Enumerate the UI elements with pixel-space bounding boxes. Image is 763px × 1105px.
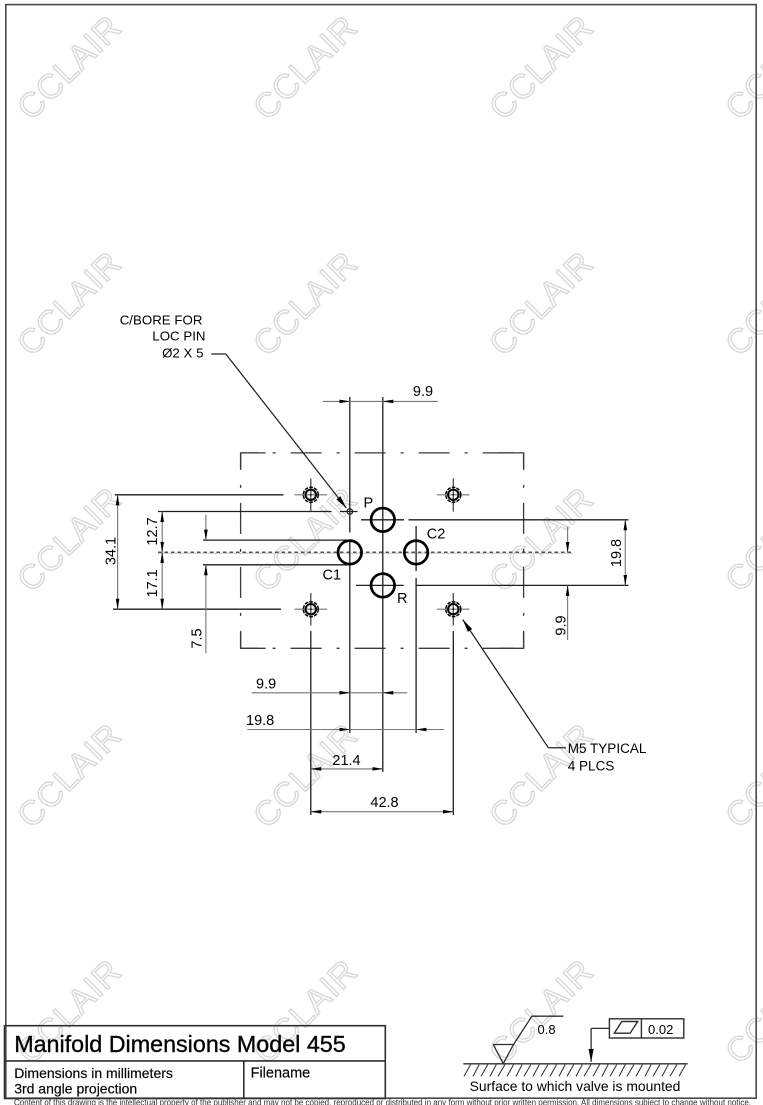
svg-text:19.8: 19.8 [246, 713, 274, 729]
svg-text:Ø2 X 5: Ø2 X 5 [162, 346, 203, 361]
svg-text:21.4: 21.4 [332, 753, 360, 769]
svg-text:CCLAIR: CCLAIR [10, 716, 129, 835]
svg-text:0.02: 0.02 [648, 1022, 673, 1037]
svg-text:17.1: 17.1 [145, 569, 161, 597]
svg-text:9.9: 9.9 [554, 615, 570, 635]
svg-text:CCLAIR: CCLAIR [246, 8, 365, 127]
svg-text:Dimensions in millimeters: Dimensions in millimeters [14, 1065, 173, 1081]
svg-text:C1: C1 [323, 568, 342, 584]
svg-text:3rd angle projection: 3rd angle projection [14, 1081, 137, 1097]
svg-text:C/BORE FOR: C/BORE FOR [120, 313, 203, 328]
svg-text:Manifold Dimensions Model 455: Manifold Dimensions Model 455 [14, 1031, 346, 1057]
svg-text:CCLAIR: CCLAIR [246, 716, 365, 835]
svg-text:19.8: 19.8 [609, 539, 625, 567]
svg-text:42.8: 42.8 [370, 795, 398, 811]
svg-text:Content of this drawing is the: Content of this drawing is the intellect… [14, 1098, 751, 1105]
svg-text:LOC PIN: LOC PIN [152, 329, 205, 344]
svg-text:4 PLCS: 4 PLCS [568, 759, 615, 774]
svg-text:M5 TYPICAL: M5 TYPICAL [568, 741, 647, 756]
svg-text:34.1: 34.1 [104, 537, 120, 565]
svg-text:CCLAIR: CCLAIR [482, 244, 601, 363]
svg-text:CCLAIR: CCLAIR [10, 244, 129, 363]
svg-text:CCLAIR: CCLAIR [482, 952, 601, 1071]
svg-text:C2: C2 [427, 527, 446, 543]
svg-text:9.9: 9.9 [413, 384, 433, 400]
svg-text:Filename: Filename [251, 1066, 311, 1082]
svg-text:12.7: 12.7 [145, 517, 161, 545]
svg-text:P: P [364, 496, 374, 512]
svg-text:CCLAIR: CCLAIR [246, 244, 365, 363]
svg-text:CCLAIR: CCLAIR [482, 8, 601, 127]
svg-text:Surface to which valve is moun: Surface to which valve is mounted [470, 1078, 681, 1094]
svg-text:7.5: 7.5 [190, 628, 206, 648]
svg-text:CCLAIR: CCLAIR [482, 480, 601, 599]
svg-text:9.9: 9.9 [256, 677, 276, 693]
svg-text:CCLAIR: CCLAIR [10, 8, 129, 127]
svg-text:CCLAIR: CCLAIR [482, 716, 601, 835]
svg-text:0.8: 0.8 [538, 1022, 556, 1037]
svg-text:R: R [397, 591, 407, 607]
